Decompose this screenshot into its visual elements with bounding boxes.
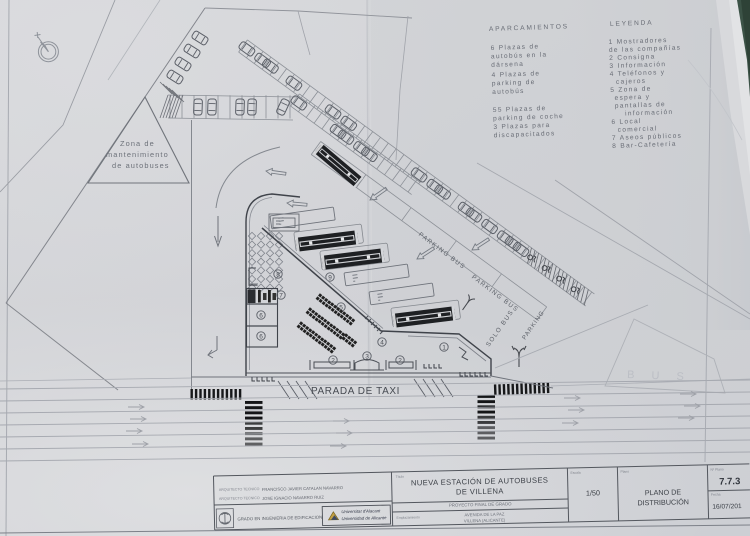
svg-text:Universidad de Alicante: Universidad de Alicante bbox=[341, 515, 387, 521]
svg-text:4: 4 bbox=[380, 339, 384, 346]
svg-text:2: 2 bbox=[398, 357, 402, 364]
svg-text:Fecha: Fecha bbox=[711, 493, 721, 497]
svg-text:Zona de: Zona de bbox=[120, 139, 155, 148]
svg-text:mantenimiento: mantenimiento bbox=[106, 150, 169, 159]
svg-text:PLANO DE: PLANO DE bbox=[645, 487, 682, 497]
svg-text:6: 6 bbox=[259, 312, 263, 319]
svg-text:cajeros: cajeros bbox=[616, 78, 647, 86]
svg-text:16/07/201: 16/07/201 bbox=[712, 503, 742, 511]
svg-text:6 Local: 6 Local bbox=[611, 118, 642, 126]
svg-text:7: 7 bbox=[279, 292, 283, 299]
svg-text:PARADA DE TAXI: PARADA DE TAXI bbox=[311, 386, 400, 397]
svg-text:1: 1 bbox=[442, 344, 446, 351]
svg-text:comercial: comercial bbox=[618, 125, 658, 133]
svg-text:Emplazamiento: Emplazamiento bbox=[396, 515, 420, 520]
svg-text:5 Zona de: 5 Zona de bbox=[610, 86, 652, 94]
svg-text:Escala: Escala bbox=[570, 471, 580, 475]
svg-text:1/50: 1/50 bbox=[586, 488, 600, 497]
svg-text:9: 9 bbox=[328, 274, 332, 281]
svg-text:8: 8 bbox=[276, 271, 280, 278]
svg-text:7.7.3: 7.7.3 bbox=[719, 476, 740, 487]
svg-text:AVENIDA DE LA PAZ: AVENIDA DE LA PAZ bbox=[464, 511, 504, 517]
svg-text:de autobuses: de autobuses bbox=[112, 161, 170, 170]
svg-text:Plano: Plano bbox=[620, 470, 629, 474]
svg-text:Universitat d'Alacant: Universitat d'Alacant bbox=[341, 508, 381, 514]
svg-text:DISTRIBUCIÓN: DISTRIBUCIÓN bbox=[637, 497, 689, 507]
svg-text:espera y: espera y bbox=[614, 94, 650, 102]
svg-text:Nº Plano: Nº Plano bbox=[710, 467, 724, 471]
svg-text:Título: Título bbox=[395, 475, 404, 479]
svg-text:2: 2 bbox=[331, 357, 335, 364]
svg-text:6: 6 bbox=[259, 333, 263, 340]
svg-text:dársena: dársena bbox=[491, 61, 524, 69]
svg-text:autobús: autobús bbox=[492, 88, 525, 96]
svg-text:VILLENA (ALICANTE): VILLENA (ALICANTE) bbox=[464, 517, 506, 523]
svg-text:DE VILLENA: DE VILLENA bbox=[456, 486, 505, 496]
